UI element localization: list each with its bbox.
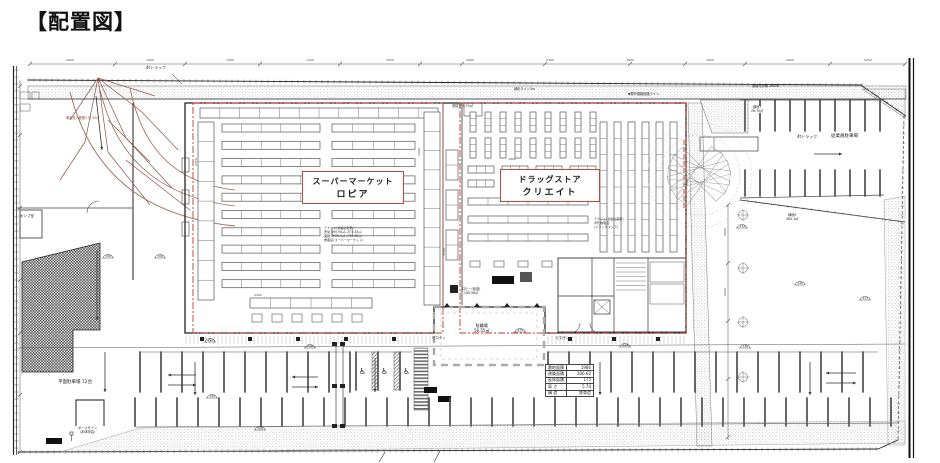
svg-text:-140: -140 — [797, 281, 804, 285]
green-areas — [688, 89, 905, 446]
svg-text:5000: 5000 — [706, 58, 714, 62]
svg-text:-475: -475 — [517, 328, 524, 332]
drugstore-name: ドラッグストア — [519, 174, 582, 185]
drugstore-label-box: ドラッグストア クリエイト — [500, 169, 600, 202]
backroom-rooms — [558, 258, 686, 333]
site-plan-canvas: ♿♿♿2000150074001100350024902400150050002… — [0, 0, 940, 463]
tenant-note-drugstore: テナント(仮設)(変更) 4号 物販店 (ドラッグストア) — [594, 218, 624, 230]
truck-4t-top-label: 4tトラック — [146, 66, 166, 71]
svg-text:-144: -144 — [739, 224, 746, 228]
lobby-label: ロビー(仮設) 109.56㎡ — [462, 288, 480, 295]
svg-text:-300: -300 — [157, 254, 164, 258]
svg-text:1500: 1500 — [626, 58, 634, 62]
svg-text:2400: 2400 — [546, 58, 554, 62]
canopy-dashed-area — [434, 303, 544, 365]
svg-text:-300: -300 — [209, 394, 216, 398]
storefront-walk — [16, 336, 905, 348]
svg-text:3000: 3000 — [685, 178, 689, 186]
piloti-label-1: ピロティ — [432, 336, 446, 340]
accessible-parking: ♿♿♿ — [356, 352, 412, 390]
entry-note-label: 車両進入範囲273.30㎡ — [66, 117, 99, 121]
vestibule-label: 風除室 9.75㎡ — [452, 105, 473, 109]
flat-parking-label: 平面駐車場 72台 — [58, 380, 92, 385]
site-data-table: 敷地面積1986 建築面積306.60 延床面積175 高 さ5.74 構 造鉄… — [545, 364, 594, 397]
site-plan-page: 【配置図】 ♿♿♿2000150074001100350024902400150… — [0, 0, 940, 463]
svg-text:-125: -125 — [622, 343, 629, 347]
green-7-label: 緑地7 26.70㎡ — [750, 106, 764, 113]
road-note-1: 緑化ライン3m — [514, 88, 535, 92]
svg-text:-220: -220 — [207, 338, 214, 342]
svg-text:2000: 2000 — [66, 58, 74, 62]
bicycle-area-label: 駐輪場 56.55㎡ — [474, 324, 489, 333]
svg-text:♿: ♿ — [359, 367, 366, 376]
supermarket-shelving — [198, 108, 458, 322]
svg-text:3500: 3500 — [386, 58, 394, 62]
pole-sign-label: ポールサイン (本体申請) — [78, 427, 97, 434]
table-cell: 構 造 — [546, 390, 567, 396]
pedestrian-walkway — [414, 348, 451, 410]
svg-text:-115: -115 — [862, 296, 869, 300]
supermarket-name: スーパーマーケット — [313, 176, 394, 187]
drugstore-brand: クリエイト — [522, 185, 577, 198]
svg-text:2400: 2400 — [254, 293, 262, 297]
svg-text:2000: 2000 — [786, 58, 794, 62]
svg-text:6000: 6000 — [723, 228, 727, 236]
svg-text:-300: -300 — [307, 344, 314, 348]
dimension-line-top — [18, 62, 907, 454]
svg-text:1800: 1800 — [508, 157, 516, 161]
svg-text:2450: 2450 — [194, 158, 198, 166]
svg-text:2490: 2490 — [466, 58, 474, 62]
piloti-label-2: ピロティ — [556, 336, 570, 340]
svg-text:2400: 2400 — [417, 148, 421, 156]
slope-crosshatch — [22, 243, 100, 372]
road-note-2: 道路境界線 20000 — [752, 85, 779, 89]
svg-text:1100: 1100 — [306, 58, 314, 62]
svg-text:3500: 3500 — [442, 248, 446, 256]
svg-text:7400: 7400 — [226, 58, 234, 62]
green-5-label: 緑地5 584.1㎡ — [786, 214, 798, 221]
employee-parking-label: 従業員駐車場 — [831, 134, 858, 139]
table-cell: 鉄骨造 — [567, 390, 594, 396]
svg-text:6000: 6000 — [723, 288, 727, 296]
road-note-3: ▼屋外避難経路ライン — [628, 93, 659, 97]
svg-text:-180: -180 — [742, 344, 749, 348]
supermarket-brand: ロピア — [336, 187, 369, 200]
main-parking — [46, 342, 905, 462]
svg-text:1500: 1500 — [146, 58, 154, 62]
truck-4t-label: 4tトラック — [797, 135, 817, 140]
svg-text:♿: ♿ — [381, 367, 388, 376]
pump-room-label: ポンプ室 — [20, 214, 34, 218]
svg-text:♿: ♿ — [403, 367, 410, 376]
svg-text:5250: 5250 — [864, 58, 872, 62]
tenant-note-supermarket: テナント(仮設)(変更) 売場 690.94㎡→574.43㎡ 面積 2525.… — [324, 227, 364, 242]
site-boundary — [14, 58, 914, 458]
svg-text:-300: -300 — [257, 426, 264, 430]
supermarket-label-box: スーパーマーケット ロピア — [302, 171, 404, 204]
svg-text:-300: -300 — [105, 254, 112, 258]
